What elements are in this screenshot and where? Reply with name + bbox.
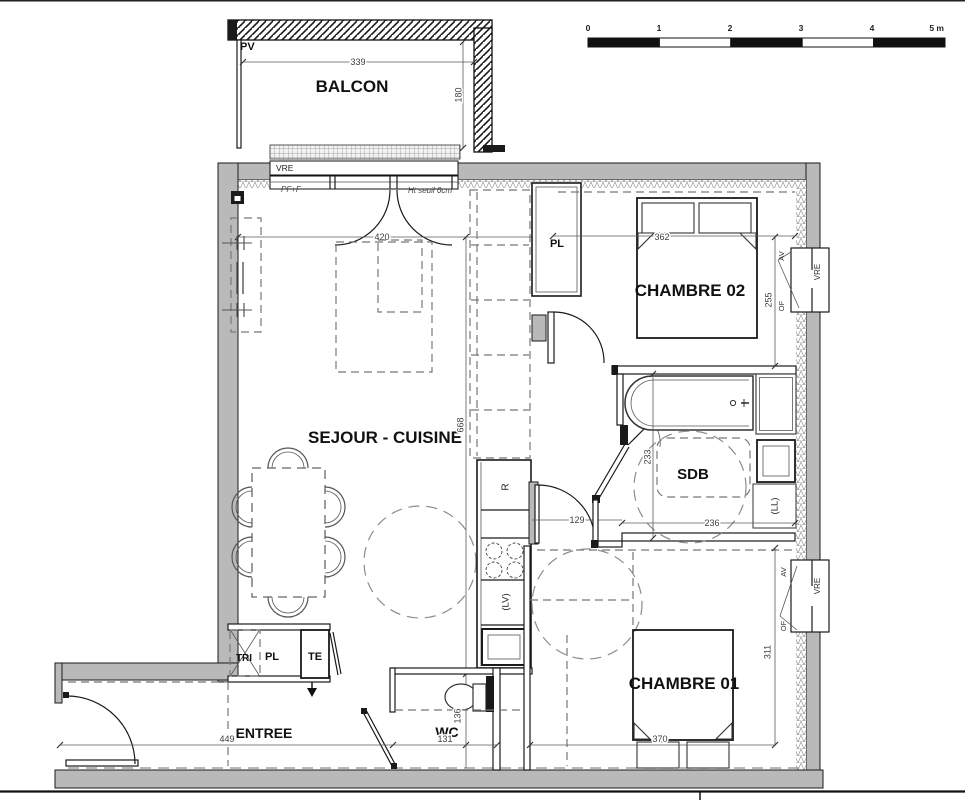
dashed-zone-large — [336, 242, 432, 372]
scale-bar-segments — [588, 38, 945, 47]
dim-balcon-width: 339 — [350, 57, 365, 67]
bathtub — [625, 376, 753, 430]
chair-right-2 — [325, 537, 345, 577]
balcony-french-window: VRE PF+F Ht seuil 6cm — [270, 161, 458, 245]
tri-label: TRI — [236, 653, 252, 664]
dim-wc-width: 131 — [437, 734, 452, 744]
turning-circle-sejour — [364, 506, 476, 618]
dim-wc-depth: 136 — [452, 708, 462, 723]
chambre02-window: AV OF VRE — [777, 248, 829, 312]
valve-symbol — [307, 682, 317, 697]
dim-balcon-depth: 180 — [453, 87, 463, 102]
balcony-hatched-wall — [228, 20, 492, 40]
vre-label-balcony: VRE — [276, 163, 294, 173]
of-label-ch02: OF — [777, 300, 786, 311]
chair-top — [268, 448, 308, 468]
entry-door — [63, 692, 138, 766]
pv-label: PV — [240, 41, 255, 53]
dim-chambre01-depth: 311 — [762, 645, 772, 659]
chair-right-1 — [325, 487, 345, 527]
of-label-ch01: OF — [779, 620, 788, 631]
threshold-note: Ht seuil 6cm — [408, 186, 452, 195]
scale-tick-1: 1 — [657, 23, 662, 33]
chair-bottom — [268, 597, 308, 617]
turning-circle-chambre01 — [532, 549, 642, 659]
balcony: PV BALCON 339 180 — [228, 20, 505, 159]
scale-bar: 0 1 2 3 4 5 m — [586, 23, 945, 47]
pf-f-label: PF+F — [281, 185, 302, 194]
scale-tick-5: 5 m — [929, 23, 944, 33]
salle-de-bain: (LL) SDB 233 236 — [591, 371, 798, 548]
turning-circle-sdb — [634, 431, 746, 543]
entry-closets: TRI PL TE — [228, 624, 341, 697]
fridge-label: R — [501, 483, 512, 490]
balcon-room-label: BALCON — [316, 77, 389, 96]
scale-tick-0: 0 — [586, 23, 591, 33]
chambre01-room-label: CHAMBRE 01 — [629, 674, 740, 693]
chambre02-door-leaf — [548, 312, 554, 363]
chambre01-window: AV OF VRE — [779, 560, 829, 632]
dim-chambre02-depth: 255 — [763, 292, 773, 307]
floor-plan-page: 0 1 2 3 4 5 m PV BALCON 339 180 — [0, 0, 965, 800]
lintel-mark — [483, 145, 505, 152]
dashed-zone-inner — [378, 240, 422, 312]
dishwasher-label: (LV) — [501, 593, 512, 610]
chambre-01: CHAMBRE 01 311 AV OF VRE — [524, 545, 829, 770]
entry-corridor-wall — [55, 663, 238, 680]
entree-room-label: ENTREE — [236, 725, 293, 741]
wc-door-leaf — [361, 708, 397, 769]
balcony-side-wall — [237, 40, 241, 148]
balcony-hatched-pier — [474, 28, 492, 152]
chambre-02: CHAMBRE 02 362 255 AV OF VRE — [550, 192, 829, 375]
bathroom-cabinet — [756, 374, 796, 434]
te-label: TE — [308, 651, 322, 663]
dim-sdb-width: 236 — [704, 518, 719, 528]
washer-label: (LL) — [770, 498, 781, 515]
dim-sejour-length: 668 — [455, 417, 465, 432]
sdb-chambre01-wall — [622, 533, 795, 541]
hall-closet: PL — [532, 183, 604, 363]
bottom-exterior-wall — [55, 770, 823, 788]
av-label-ch02: AV — [777, 251, 786, 260]
av-label-ch01: AV — [779, 567, 788, 576]
kitchen-sink — [482, 629, 526, 665]
left-exterior-wall — [218, 163, 238, 682]
wc: WC 136 — [361, 668, 532, 770]
scale-tick-3: 3 — [799, 23, 804, 33]
hall-door: 129 — [532, 485, 622, 543]
sejour-room-label: SEJOUR - CUISINE — [308, 428, 462, 447]
bed-double — [637, 198, 757, 338]
scale-tick-2: 2 — [728, 23, 733, 33]
chambre02-door-swing — [554, 312, 604, 363]
dining-table — [232, 448, 345, 617]
chambre02-room-label: CHAMBRE 02 — [635, 281, 746, 300]
floor-plan-drawing: 0 1 2 3 4 5 m PV BALCON 339 180 — [0, 0, 965, 800]
pl-entree-label: PL — [265, 651, 279, 663]
chambre02-sdb-wall — [612, 366, 796, 374]
vre-label-ch01: VRE — [813, 578, 822, 594]
dim-sdb-depth: 233 — [642, 449, 652, 464]
dim-chambre02-width: 362 — [654, 232, 669, 242]
chambre01-left-wall — [524, 546, 530, 770]
window-vre-box — [270, 161, 458, 175]
balcony-grating — [270, 145, 460, 159]
bed-double — [633, 630, 733, 768]
toilet — [445, 676, 494, 712]
dim-entree-width: 449 — [219, 734, 234, 744]
dim-chambre01-width: 370 — [652, 734, 667, 744]
dim-hall-door: 129 — [569, 515, 584, 525]
kitchen-tall-units-dashed — [470, 190, 530, 458]
pl-hall-label: PL — [550, 238, 564, 250]
sdb-room-label: SDB — [677, 466, 709, 483]
door-jamb — [532, 315, 546, 341]
scale-tick-4: 4 — [870, 23, 875, 33]
vre-label-ch02: VRE — [813, 264, 822, 280]
te-closet: TE — [301, 630, 341, 697]
